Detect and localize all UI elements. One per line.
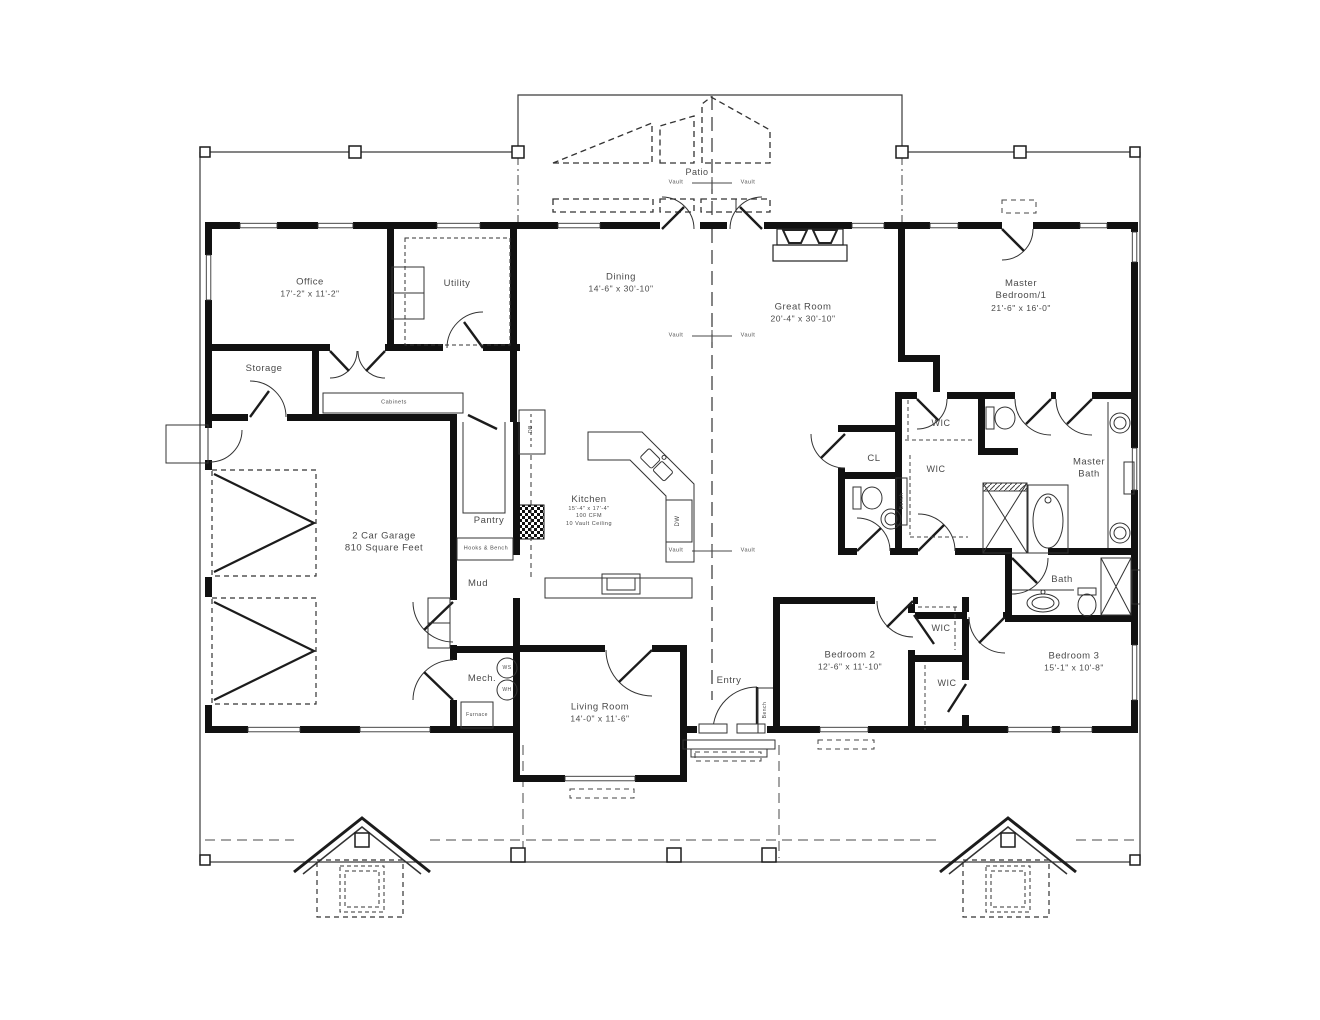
garage-door-indicators (212, 470, 316, 704)
fireplace (773, 229, 847, 261)
powder-room-fixtures (853, 487, 901, 529)
porch-gable-left (294, 818, 430, 917)
mudroom-mech-fixtures (428, 598, 517, 728)
windows (206, 223, 1140, 781)
utility-fixtures (392, 238, 510, 345)
benches (758, 478, 907, 733)
patio-roof-dashed-shapes (553, 97, 770, 212)
wall-openings (205, 222, 1138, 782)
floor-plan-drawing (0, 0, 1320, 1020)
floor-plan-canvas: Office17'-2" x 11'-2"UtilityStorageDinin… (0, 0, 1320, 1020)
water-closet-fixtures (986, 407, 1015, 429)
closet-shelving-dashed (905, 400, 972, 730)
hall-bath-fixtures (1012, 558, 1131, 616)
master-bath-fixtures (983, 402, 1134, 553)
kitchen-fixtures (516, 410, 694, 598)
side-stoop (166, 425, 208, 463)
porch-gable-right (940, 818, 1076, 917)
porch-posts (200, 146, 1140, 865)
walls (205, 222, 1138, 782)
porch-outline (200, 95, 1140, 862)
pantry-shelves (457, 422, 513, 560)
cabinets-strip (323, 393, 463, 413)
